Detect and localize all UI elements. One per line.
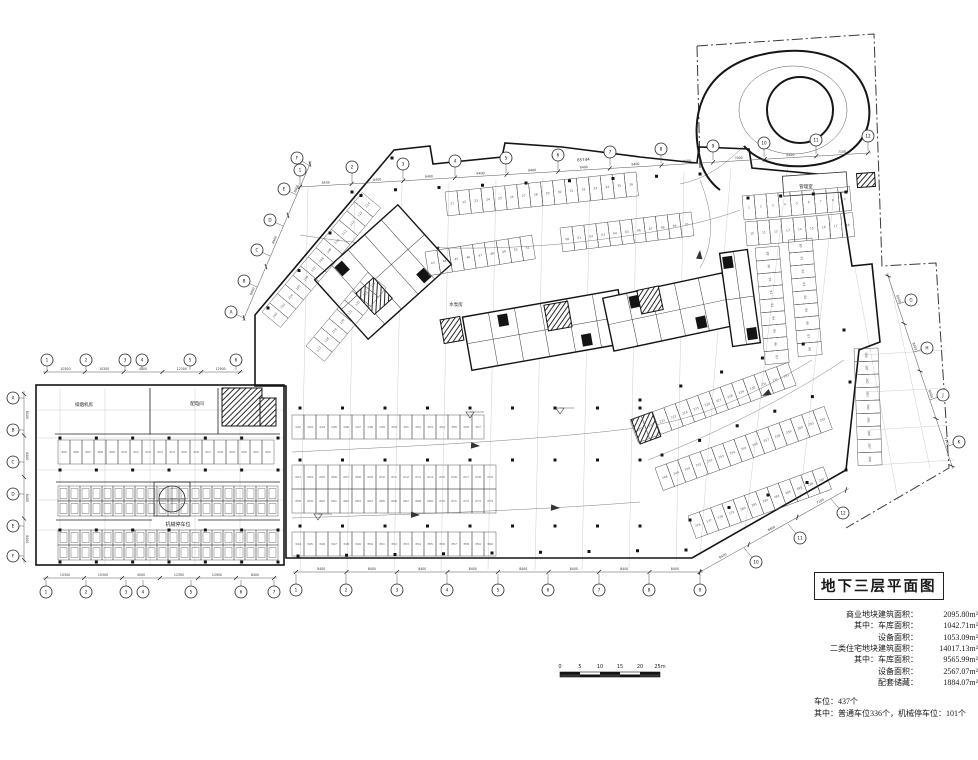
svg-text:28: 28	[534, 192, 538, 196]
svg-text:1: 1	[45, 590, 48, 595]
svg-text:69: 69	[672, 224, 676, 228]
svg-text:305: 305	[61, 450, 67, 454]
svg-text:384: 384	[866, 404, 870, 410]
svg-text:111: 111	[341, 229, 348, 236]
svg-text:104: 104	[287, 293, 294, 300]
svg-text:258: 258	[295, 499, 301, 503]
building-core	[603, 273, 734, 351]
svg-text:265: 265	[379, 499, 385, 503]
svg-text:146: 146	[343, 425, 349, 429]
svg-text:216: 216	[451, 475, 457, 479]
grid-bubble: 2	[340, 574, 352, 596]
svg-text:251: 251	[695, 462, 702, 468]
svg-text:10: 10	[597, 664, 603, 670]
svg-text:280: 280	[739, 506, 746, 512]
grid-bubble: 5	[185, 580, 197, 598]
grid-bubble: A	[225, 306, 244, 318]
svg-text:7100: 7100	[816, 497, 825, 504]
grid-bubble: 12	[831, 499, 849, 519]
svg-text:8400: 8400	[528, 168, 536, 172]
svg-text:B: B	[12, 428, 15, 433]
svg-text:89: 89	[765, 251, 769, 255]
svg-text:4500: 4500	[139, 367, 147, 371]
svg-text:255: 255	[740, 446, 747, 452]
svg-text:81: 81	[800, 256, 804, 260]
svg-text:8400: 8400	[570, 567, 578, 571]
grid-bubble: 2	[80, 354, 92, 370]
svg-text:8400: 8400	[718, 552, 727, 559]
svg-text:90: 90	[767, 264, 771, 268]
svg-text:35: 35	[617, 184, 621, 188]
svg-text:227: 227	[715, 398, 722, 404]
svg-text:2: 2	[85, 358, 88, 363]
svg-text:353: 353	[403, 542, 409, 546]
svg-text:8400: 8400	[767, 525, 776, 532]
svg-text:5: 5	[796, 201, 798, 205]
grid-bubble: B	[7, 424, 24, 436]
svg-text:281: 281	[751, 502, 758, 508]
grid-bubble: 4	[441, 574, 453, 596]
svg-text:108: 108	[318, 256, 325, 263]
svg-text:157: 157	[475, 425, 481, 429]
grid-bubble: D	[7, 488, 24, 500]
svg-text:C: C	[12, 460, 15, 465]
svg-text:8400: 8400	[911, 342, 917, 351]
svg-text:226: 226	[704, 402, 711, 408]
svg-text:319: 319	[229, 450, 235, 454]
svg-text:8400: 8400	[321, 180, 329, 184]
svg-text:10300: 10300	[60, 573, 70, 577]
svg-text:49: 49	[502, 249, 506, 254]
svg-text:205: 205	[319, 475, 325, 479]
svg-text:5: 5	[190, 590, 193, 595]
svg-text:94: 94	[771, 316, 775, 320]
svg-text:249: 249	[673, 470, 680, 476]
svg-text:351: 351	[379, 542, 385, 546]
svg-text:228: 228	[727, 394, 734, 400]
svg-text:5: 5	[189, 358, 192, 363]
grid-bubble: D	[264, 214, 283, 226]
svg-text:8400: 8400	[895, 294, 901, 303]
svg-text:217: 217	[463, 475, 469, 479]
grid-bubble: 5	[492, 574, 504, 596]
svg-text:60: 60	[565, 237, 569, 241]
svg-text:25m: 25m	[654, 664, 665, 670]
svg-text:5: 5	[505, 156, 508, 161]
svg-text:106: 106	[303, 275, 310, 282]
svg-text:2: 2	[85, 590, 88, 595]
svg-text:32: 32	[581, 187, 585, 191]
svg-text:345: 345	[307, 542, 313, 546]
svg-text:113: 113	[357, 210, 364, 217]
area-stats: 商业地块建筑面积：2095.80m²其中：车库面积：1042.71m²设备面积：…	[814, 609, 978, 689]
svg-text:156: 156	[463, 425, 469, 429]
svg-text:12: 12	[865, 134, 871, 139]
svg-text:25: 25	[498, 196, 502, 200]
grid-bubble: 9	[694, 574, 706, 596]
lane-arrow-icon	[551, 504, 560, 511]
svg-text:105: 105	[295, 284, 302, 291]
svg-text:206: 206	[331, 475, 337, 479]
grid-bubble: 2	[80, 580, 92, 598]
lane-arrow-icon	[411, 511, 420, 518]
svg-text:68: 68	[661, 225, 665, 229]
svg-text:8400: 8400	[271, 235, 278, 244]
svg-text:H: H	[925, 346, 928, 351]
svg-text:8400: 8400	[476, 171, 484, 175]
svg-text:312: 312	[145, 450, 151, 454]
svg-text:387: 387	[867, 443, 871, 449]
svg-text:47: 47	[478, 253, 482, 258]
svg-text:7: 7	[598, 588, 601, 593]
svg-text:10300: 10300	[60, 367, 70, 371]
svg-text:5: 5	[578, 664, 581, 670]
svg-text:17: 17	[834, 224, 838, 228]
grid-bubble: C	[251, 244, 270, 256]
svg-text:383: 383	[865, 391, 869, 397]
svg-text:13: 13	[786, 228, 790, 232]
svg-text:309: 309	[109, 450, 115, 454]
svg-text:11: 11	[797, 536, 803, 541]
parking-row: 3443453463473483493503513523533543553563…	[292, 532, 496, 556]
svg-text:8400: 8400	[580, 165, 588, 169]
svg-text:63: 63	[601, 233, 605, 237]
mechanical-parking-row	[58, 530, 278, 545]
svg-text:203: 203	[295, 475, 301, 479]
svg-text:97: 97	[775, 355, 779, 359]
svg-text:3: 3	[125, 590, 128, 595]
svg-text:10: 10	[753, 560, 759, 565]
svg-text:D: D	[268, 218, 271, 223]
svg-text:8400: 8400	[620, 567, 628, 571]
svg-text:321: 321	[253, 450, 259, 454]
svg-text:278: 278	[717, 514, 724, 520]
svg-text:223: 223	[670, 414, 677, 420]
svg-text:260: 260	[319, 499, 325, 503]
grid-bubble: 1	[290, 574, 302, 596]
svg-text:91: 91	[768, 277, 772, 281]
svg-text:10300: 10300	[98, 573, 108, 577]
svg-text:8400: 8400	[425, 174, 433, 178]
svg-text:117: 117	[316, 346, 323, 353]
grid-bubble: C	[7, 456, 24, 468]
svg-text:316: 316	[193, 450, 199, 454]
room-label: 机械停车位	[165, 521, 190, 528]
parking-summary: 车位：437个 其中：普通车位336个，机械停车位：101个	[814, 696, 978, 722]
grid-bubble: 2	[346, 161, 358, 182]
svg-text:388: 388	[868, 456, 872, 462]
dimension-chain: 8400640084008400	[22, 391, 29, 563]
grid-bubble: 1	[40, 580, 52, 598]
svg-text:7100: 7100	[943, 437, 949, 446]
svg-text:34: 34	[605, 185, 609, 189]
svg-text:359: 359	[475, 542, 481, 546]
svg-text:212: 212	[403, 475, 409, 479]
grid-bubble: A	[7, 392, 24, 404]
svg-text:27: 27	[522, 194, 526, 198]
svg-text:320: 320	[241, 450, 247, 454]
svg-text:120: 120	[339, 318, 346, 325]
svg-text:148: 148	[367, 425, 373, 429]
svg-text:6: 6	[240, 590, 243, 595]
mechanical-parking-row	[58, 501, 278, 516]
svg-text:155: 155	[451, 425, 457, 429]
svg-text:9: 9	[844, 197, 846, 201]
svg-text:276: 276	[694, 522, 701, 528]
svg-text:315: 315	[181, 450, 187, 454]
svg-text:85744: 85744	[577, 157, 590, 163]
svg-text:62: 62	[589, 234, 593, 238]
svg-text:15: 15	[810, 226, 814, 230]
svg-text:119: 119	[331, 327, 338, 334]
svg-text:360: 360	[487, 542, 493, 546]
svg-text:45: 45	[454, 257, 458, 262]
svg-text:260: 260	[797, 425, 804, 431]
room	[782, 172, 847, 196]
parking-total: 车位：437个	[814, 696, 978, 709]
svg-text:262: 262	[343, 499, 349, 503]
svg-text:8: 8	[648, 588, 651, 593]
parking-row: 276277278279280281282283284285286287	[688, 467, 832, 539]
svg-text:26: 26	[510, 195, 514, 199]
svg-text:152: 152	[415, 425, 421, 429]
stair-core	[637, 286, 664, 314]
svg-text:209: 209	[367, 475, 373, 479]
grid-bubble: 6	[230, 354, 242, 370]
grid-bubble: 12	[862, 130, 874, 151]
svg-text:208: 208	[355, 475, 361, 479]
svg-text:283: 283	[773, 494, 780, 500]
svg-text:270: 270	[439, 499, 445, 503]
parking-row: 899091929394959697	[755, 246, 789, 365]
svg-text:5: 5	[497, 588, 500, 593]
svg-text:267: 267	[403, 499, 409, 503]
grid-bubble: 7	[593, 574, 605, 596]
dimension-chain: 840084007100	[695, 484, 850, 575]
grid-bubble: 3	[120, 580, 132, 598]
svg-text:83: 83	[802, 282, 806, 286]
svg-text:15: 15	[617, 664, 623, 670]
svg-text:248: 248	[661, 474, 668, 480]
svg-text:355: 355	[427, 542, 433, 546]
svg-text:23: 23	[474, 199, 478, 203]
svg-text:1: 1	[295, 588, 298, 593]
svg-text:147: 147	[355, 425, 361, 429]
elevation-mark	[556, 408, 574, 414]
svg-text:7: 7	[609, 150, 612, 155]
svg-text:381: 381	[865, 365, 869, 371]
svg-text:229: 229	[738, 389, 745, 395]
lane-arrow-icon	[696, 250, 703, 260]
svg-text:80: 80	[798, 243, 802, 247]
svg-text:95: 95	[772, 329, 776, 333]
svg-text:A: A	[230, 310, 233, 315]
svg-text:6400: 6400	[25, 452, 29, 460]
svg-text:310: 310	[121, 450, 127, 454]
svg-text:350: 350	[367, 542, 373, 546]
svg-text:3: 3	[396, 588, 399, 593]
svg-text:4: 4	[142, 590, 145, 595]
grid-bubble: B	[238, 275, 257, 287]
svg-text:82: 82	[801, 269, 805, 273]
svg-text:349: 349	[355, 542, 361, 546]
svg-text:85: 85	[804, 308, 808, 312]
parking-row: 101112131415161718	[745, 213, 855, 246]
svg-text:10: 10	[761, 141, 767, 146]
grid-bubble: 4	[137, 580, 149, 598]
grid-bubble: 7	[268, 580, 280, 598]
svg-text:50: 50	[514, 247, 518, 252]
svg-text:311: 311	[133, 450, 139, 454]
grid-bubble: 1	[41, 354, 53, 370]
svg-text:232: 232	[772, 377, 779, 383]
grid-bubble: 6	[542, 574, 554, 596]
svg-text:21: 21	[450, 201, 454, 205]
svg-text:10: 10	[750, 231, 754, 235]
svg-text:151: 151	[403, 425, 409, 429]
svg-text:20: 20	[637, 664, 643, 670]
grid-bubble: E	[7, 520, 24, 532]
svg-text:284: 284	[785, 490, 792, 496]
svg-text:356: 356	[439, 542, 445, 546]
svg-text:87: 87	[806, 334, 810, 338]
svg-text:8400: 8400	[368, 567, 376, 571]
building-core	[463, 290, 628, 371]
svg-text:263: 263	[355, 499, 361, 503]
svg-text:8400: 8400	[25, 494, 29, 502]
svg-text:J: J	[941, 393, 943, 398]
room-label: 配电间	[190, 400, 204, 407]
svg-text:259: 259	[307, 499, 313, 503]
dimension-chain: 84008400840084008400840084008400	[293, 567, 703, 574]
stair-core	[222, 388, 262, 426]
svg-text:4: 4	[454, 159, 457, 164]
svg-text:6: 6	[547, 588, 550, 593]
svg-text:11: 11	[813, 138, 819, 143]
svg-text:210: 210	[379, 475, 385, 479]
svg-text:6: 6	[557, 153, 560, 158]
svg-text:92: 92	[769, 290, 773, 294]
parking-row: 2032582042592052602062612072622082632092…	[292, 465, 496, 513]
svg-text:93: 93	[770, 303, 774, 307]
stat-row: 其中：车库面积：9565.99m²	[814, 654, 978, 665]
grid-bubble: 5	[500, 152, 512, 173]
svg-text:313: 313	[157, 450, 163, 454]
svg-text:150: 150	[391, 425, 397, 429]
grid-bubble: 3	[391, 574, 403, 596]
svg-text:204: 204	[307, 475, 313, 479]
svg-text:306: 306	[73, 450, 79, 454]
svg-text:8400: 8400	[25, 535, 29, 543]
svg-text:10300: 10300	[99, 367, 109, 371]
svg-text:154: 154	[439, 425, 445, 429]
svg-text:230: 230	[749, 385, 756, 391]
dimension-chain: 1030010300450012300129008400	[43, 573, 277, 580]
svg-text:31: 31	[569, 189, 573, 193]
mechanical-parking-row	[58, 486, 278, 501]
svg-text:257: 257	[763, 437, 770, 443]
stat-row: 设备面积：2567.07m²	[814, 666, 978, 677]
svg-text:6: 6	[808, 200, 810, 204]
svg-text:64: 64	[613, 231, 617, 235]
svg-text:8400: 8400	[317, 567, 325, 571]
svg-text:262: 262	[819, 417, 826, 423]
svg-text:109: 109	[326, 247, 333, 254]
svg-text:352: 352	[391, 542, 397, 546]
parking-row: 380381382383384385386387388	[854, 348, 882, 466]
svg-text:4: 4	[446, 588, 449, 593]
svg-text:18: 18	[846, 223, 850, 227]
svg-text:8400: 8400	[927, 389, 933, 398]
svg-text:14: 14	[798, 227, 802, 231]
svg-text:0: 0	[558, 664, 561, 670]
svg-text:29: 29	[546, 191, 550, 195]
svg-text:143: 143	[307, 425, 313, 429]
svg-text:114: 114	[364, 201, 371, 208]
svg-text:268: 268	[415, 499, 421, 503]
grid-bubble: 11	[810, 134, 822, 154]
svg-text:142: 142	[295, 425, 301, 429]
stat-row: 其中：车库面积：1042.71m²	[814, 620, 978, 631]
svg-text:22: 22	[462, 200, 466, 204]
grid-bubble: 6	[552, 149, 564, 170]
svg-text:107: 107	[310, 266, 317, 273]
svg-text:347: 347	[331, 542, 337, 546]
grid-bubble: 6	[235, 580, 247, 598]
svg-text:149: 149	[379, 425, 385, 429]
svg-text:9: 9	[699, 588, 702, 593]
svg-text:8400: 8400	[469, 567, 477, 571]
svg-text:308: 308	[97, 450, 103, 454]
svg-text:8400: 8400	[631, 162, 639, 166]
svg-text:12300: 12300	[177, 367, 187, 371]
stat-row: 设备面积：1053.09m²	[814, 632, 978, 643]
svg-text:253: 253	[718, 454, 725, 460]
svg-text:219: 219	[487, 475, 493, 479]
svg-text:8400: 8400	[25, 411, 29, 419]
grid-bubble: 3	[119, 354, 131, 370]
svg-text:3: 3	[124, 358, 127, 363]
parking-row: 808182838485868788	[788, 238, 822, 357]
svg-text:314: 314	[169, 450, 175, 454]
water-tank	[154, 482, 190, 516]
svg-text:8400: 8400	[519, 567, 527, 571]
svg-text:250: 250	[684, 466, 691, 472]
svg-text:357: 357	[451, 542, 457, 546]
svg-text:7000: 7000	[735, 156, 743, 160]
parking-detail: 其中：普通车位336个，机械停车位：101个	[814, 708, 978, 721]
svg-text:266: 266	[391, 499, 397, 503]
svg-text:2: 2	[345, 588, 348, 593]
svg-text:61: 61	[577, 235, 581, 239]
svg-text:30: 30	[558, 190, 562, 194]
svg-text:6: 6	[235, 358, 238, 363]
svg-text:E: E	[12, 524, 15, 529]
svg-text:11: 11	[762, 230, 766, 234]
svg-text:271: 271	[451, 499, 457, 503]
svg-text:36: 36	[629, 182, 633, 186]
svg-text:272: 272	[463, 499, 469, 503]
grid-bubble: 7	[604, 146, 616, 166]
svg-text:279: 279	[728, 510, 735, 516]
svg-text:96: 96	[773, 342, 777, 346]
grid-bubble: 10	[744, 548, 762, 568]
svg-text:110: 110	[333, 238, 340, 245]
svg-text:8400: 8400	[418, 567, 426, 571]
svg-text:103: 103	[279, 302, 286, 309]
svg-text:8: 8	[660, 147, 663, 152]
svg-text:213: 213	[415, 475, 421, 479]
